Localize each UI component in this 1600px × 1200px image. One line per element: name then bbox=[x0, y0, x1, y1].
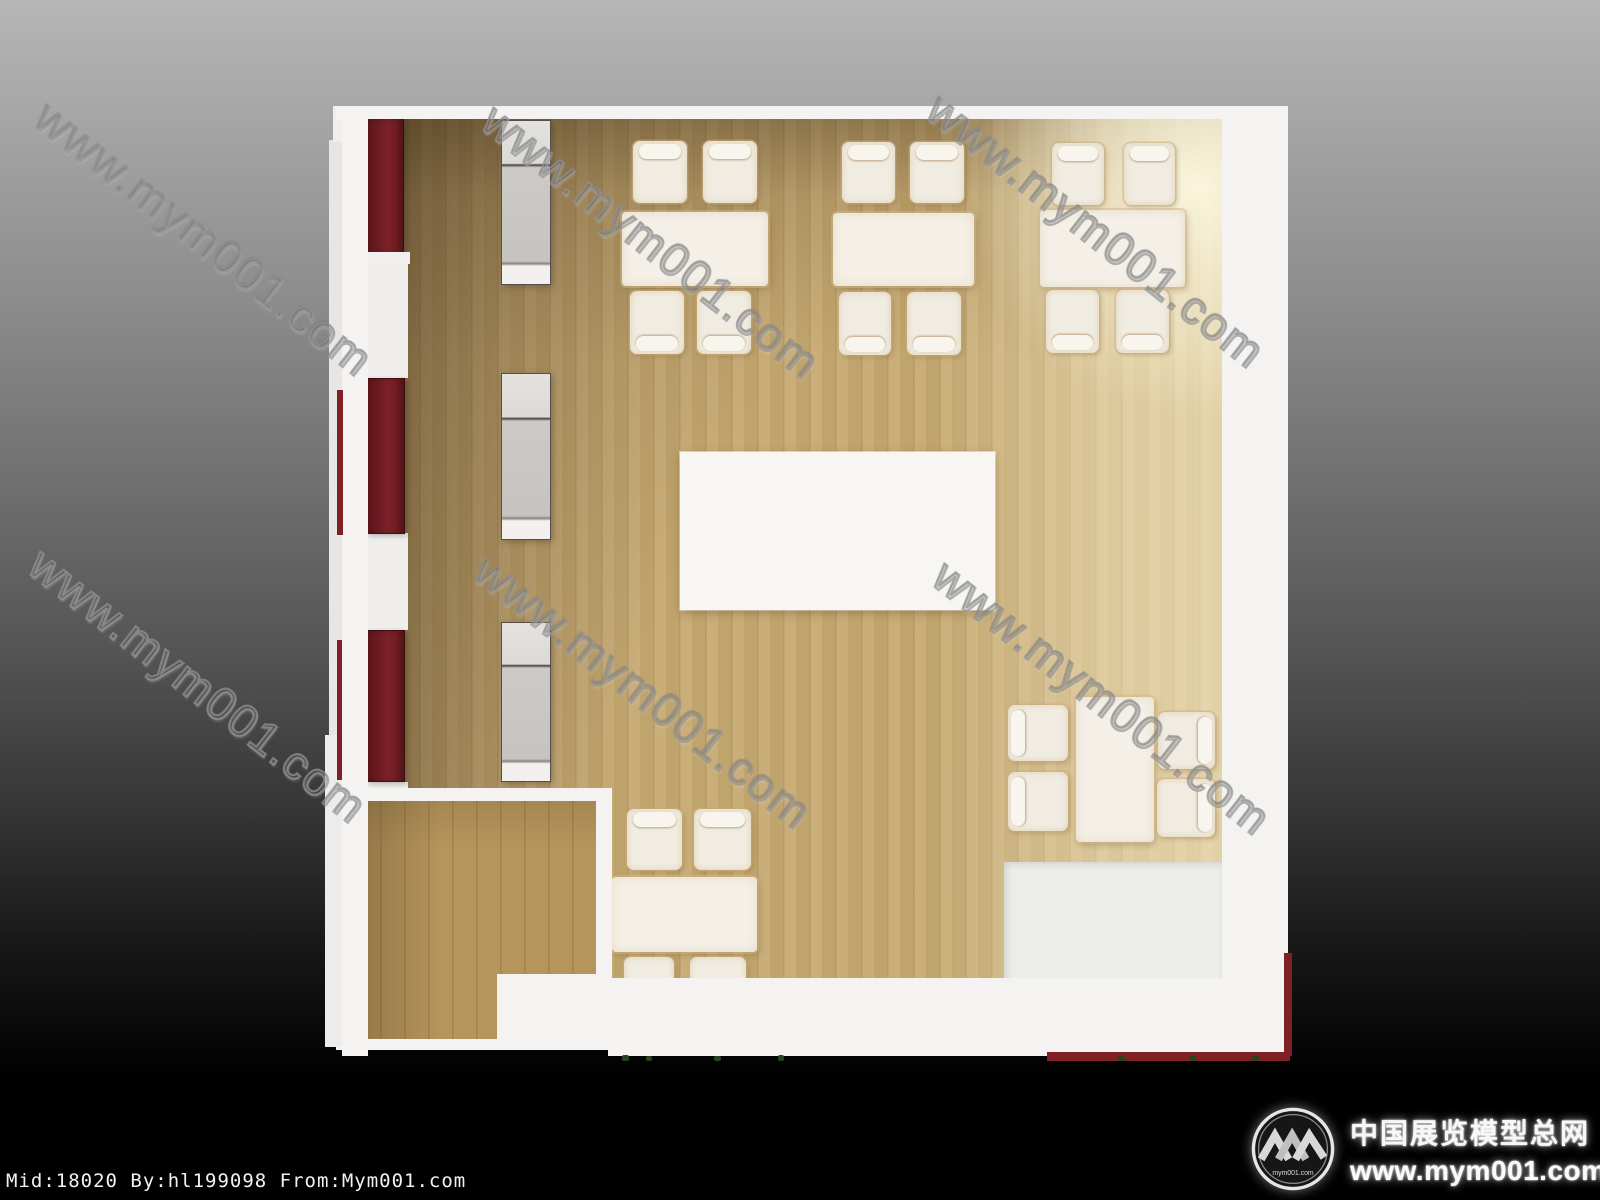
plant-speck bbox=[622, 1055, 629, 1061]
brand-text-block: 中国展览模型总网 www.mym001.com bbox=[1350, 1112, 1600, 1187]
dining-chair bbox=[694, 809, 751, 870]
dining-table bbox=[1040, 210, 1185, 287]
wall-top bbox=[336, 106, 1288, 119]
red-trim bbox=[337, 640, 342, 780]
credit-line: Mid:18020 By:hl199098 From:Mym001.com bbox=[6, 1170, 466, 1192]
render-canvas: www.mym001.comwww.mym001.comwww.mym001.c… bbox=[0, 0, 1600, 1200]
red-display-cabinet bbox=[367, 118, 404, 254]
center-display-block bbox=[680, 452, 995, 610]
cabinet-base bbox=[362, 252, 410, 264]
site-url: www.mym001.com bbox=[1350, 1155, 1600, 1187]
red-trim bbox=[337, 390, 343, 535]
dining-chair bbox=[907, 292, 961, 355]
plant-speck bbox=[1118, 1056, 1125, 1061]
wall-base-fill bbox=[362, 264, 408, 378]
small-room-notch bbox=[497, 974, 612, 1050]
dining-chair bbox=[1116, 290, 1169, 353]
red-trim bbox=[1284, 953, 1292, 1056]
dining-chair bbox=[1052, 143, 1104, 205]
site-branding: mym001.com 中国展览模型总网 www.mym001.com bbox=[1250, 1106, 1600, 1192]
dining-chair bbox=[1124, 143, 1175, 205]
dining-chair bbox=[1158, 712, 1215, 769]
dining-chair bbox=[697, 291, 751, 354]
red-display-cabinet bbox=[367, 630, 405, 782]
dining-table bbox=[622, 212, 768, 286]
display-case bbox=[501, 622, 551, 782]
plant-speck bbox=[714, 1056, 721, 1061]
site-name-chinese: 中国展览模型总网 bbox=[1350, 1112, 1600, 1152]
logo-badge-text: mym001.com bbox=[1272, 1170, 1314, 1177]
floorplan-render bbox=[0, 0, 1600, 1200]
dining-table bbox=[1076, 697, 1154, 842]
dining-chair bbox=[1046, 290, 1099, 353]
dining-chair bbox=[1008, 772, 1068, 831]
wall-left bbox=[342, 106, 368, 1056]
dining-chair bbox=[842, 142, 895, 203]
display-case bbox=[501, 373, 551, 540]
plant-speck bbox=[1190, 1055, 1196, 1061]
wall-bottom bbox=[608, 978, 1288, 1056]
display-case bbox=[501, 120, 551, 285]
corner-platform bbox=[1004, 862, 1223, 986]
dining-table bbox=[833, 213, 974, 286]
plant-speck bbox=[646, 1056, 652, 1061]
red-display-cabinet bbox=[367, 378, 405, 534]
dining-chair bbox=[703, 141, 757, 203]
dining-table bbox=[612, 877, 757, 952]
dining-chair bbox=[1157, 779, 1215, 837]
dining-chair bbox=[1008, 705, 1068, 761]
plant-speck bbox=[1252, 1056, 1259, 1061]
wall-base-fill bbox=[362, 533, 408, 630]
dining-chair bbox=[627, 809, 682, 870]
dining-chair bbox=[633, 141, 687, 203]
plant-speck bbox=[778, 1055, 784, 1061]
mym001-logo-icon: mym001.com bbox=[1250, 1106, 1336, 1192]
wall-right bbox=[1222, 106, 1288, 1056]
dining-chair bbox=[630, 291, 684, 354]
wall-outer-left-strip-2 bbox=[325, 735, 342, 1047]
dining-chair bbox=[910, 142, 964, 203]
dining-chair bbox=[839, 292, 891, 355]
